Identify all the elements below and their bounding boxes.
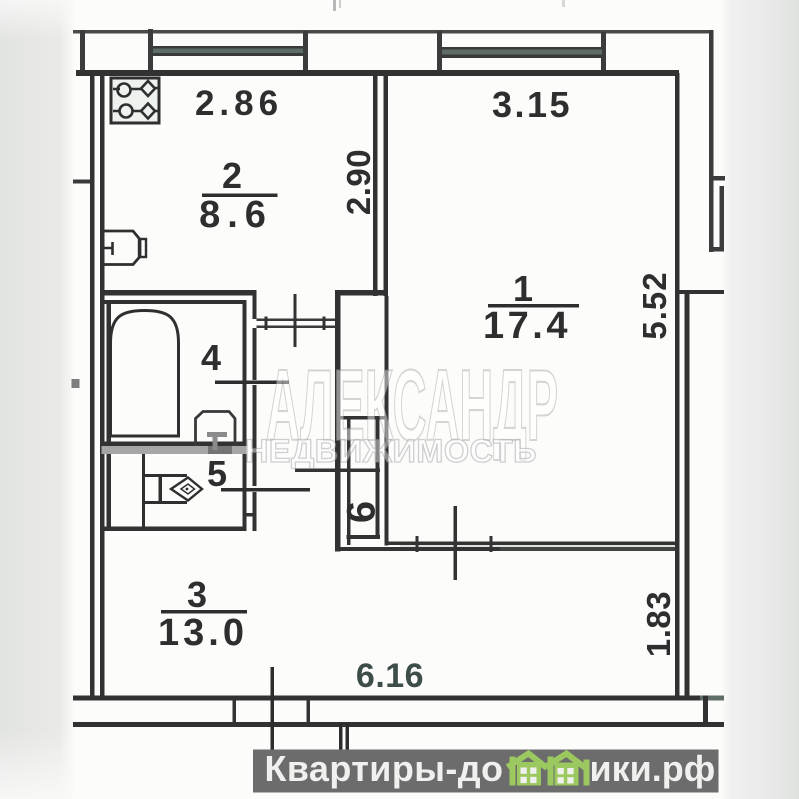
svg-text:Квартиры-до: Квартиры-до xyxy=(265,748,504,789)
svg-text:6.16: 6.16 xyxy=(356,657,424,695)
svg-text:3: 3 xyxy=(187,574,207,615)
svg-text:8.6: 8.6 xyxy=(199,194,273,236)
svg-text:1.83: 1.83 xyxy=(640,591,677,657)
svg-text:2.90: 2.90 xyxy=(340,149,377,215)
svg-text:3.15: 3.15 xyxy=(492,84,572,125)
svg-text:6: 6 xyxy=(340,501,384,523)
svg-text:1: 1 xyxy=(513,268,533,309)
svg-text:17.4: 17.4 xyxy=(483,305,571,347)
svg-text:ики.рф: ики.рф xyxy=(590,748,716,789)
svg-text:2.86: 2.86 xyxy=(195,84,283,123)
svg-text:4: 4 xyxy=(201,337,221,378)
svg-text:НЕДВИЖИМОСТЬ: НЕДВИЖИМОСТЬ xyxy=(245,433,537,469)
svg-text:5.52: 5.52 xyxy=(636,271,673,339)
svg-text:2: 2 xyxy=(222,155,242,196)
svg-text:5: 5 xyxy=(207,453,227,494)
svg-text:13.0: 13.0 xyxy=(158,612,248,654)
